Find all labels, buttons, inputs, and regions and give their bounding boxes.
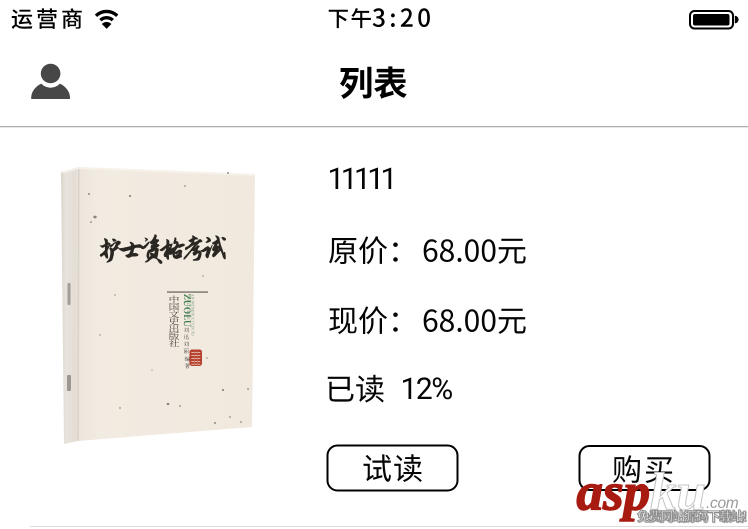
svg-text:.com: .com xyxy=(706,495,739,512)
